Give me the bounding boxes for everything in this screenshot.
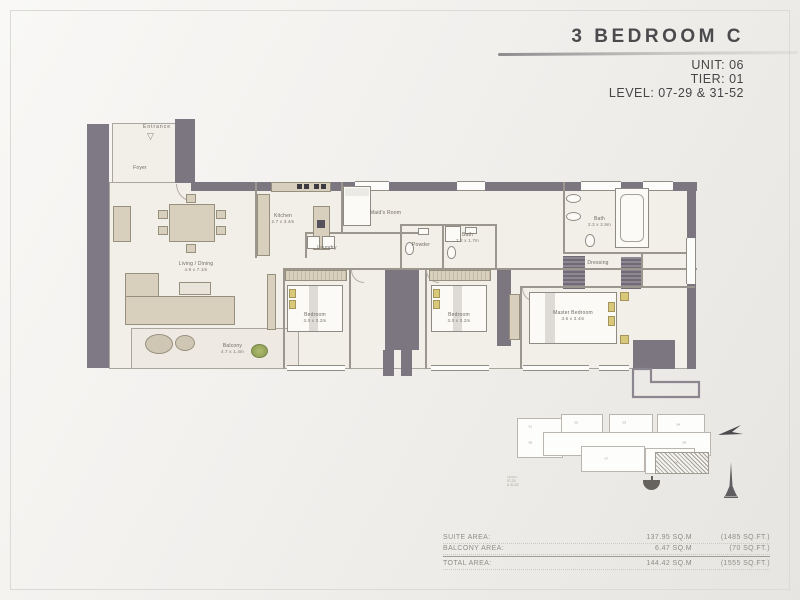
toilet xyxy=(585,234,595,247)
table-row: SUITE AREA: 137.95 SQ.M(1485 SQ.FT.) xyxy=(443,533,770,544)
nightstand xyxy=(620,292,629,301)
area-summary-table: SUITE AREA: 137.95 SQ.M(1485 SQ.FT.) BAL… xyxy=(443,533,770,570)
key-plan-unit-number: 03 xyxy=(623,422,626,425)
toilet xyxy=(447,246,456,259)
key-plan-unit-number: 07 xyxy=(605,458,608,461)
dining-chair xyxy=(158,210,168,219)
room-label-master-bath: Bath2.3 x 2.9m xyxy=(577,216,622,228)
floor-plan: Entrance ▽ Foyer Living / Dining4.9 x 7.… xyxy=(85,118,709,408)
coffee-table xyxy=(179,282,211,295)
partition xyxy=(641,252,643,286)
room-label-dressing: Dressing xyxy=(573,260,623,266)
room-label-living-dining: Living / Dining4.9 x 7.1m xyxy=(161,261,231,273)
stove-burner xyxy=(314,184,319,189)
room-label-laundry: Laundry xyxy=(307,245,347,251)
key-plan-unit-number: 04 xyxy=(677,424,680,427)
bed-pillow xyxy=(433,289,440,298)
entrance-label: Entrance xyxy=(127,124,187,130)
unit-number: UNIT: 06 xyxy=(609,58,744,72)
tv-unit xyxy=(267,274,276,330)
wall-segment xyxy=(385,268,419,350)
pouf xyxy=(175,335,195,351)
key-plan-note: LEVEL 07-29 & 31-52 xyxy=(507,476,519,488)
bed-pillow xyxy=(289,289,296,298)
room-label-bath: Bath2.2 x 1.7m xyxy=(445,232,490,244)
partition xyxy=(283,268,285,369)
unit-info: UNIT: 06 TIER: 01 LEVEL: 07-29 & 31-52 xyxy=(609,58,744,100)
area-label: BALCONY AREA: xyxy=(443,545,504,552)
sink xyxy=(566,194,581,203)
key-plan-unit-number: 01 xyxy=(529,426,532,429)
key-plan: 01 02 03 04 08 05 07 06 LEVEL 07-29 & 31… xyxy=(505,412,757,516)
area-sqm: 6.47 SQ.M xyxy=(604,545,692,552)
sideboard xyxy=(113,206,131,242)
opera-dome-icon xyxy=(643,476,661,490)
area-sqft: (1555 SQ.FT.) xyxy=(692,560,770,567)
key-plan-highlighted-unit xyxy=(655,452,709,474)
table-row-total: TOTAL AREA: 144.42 SQ.M(1555 SQ.FT.) xyxy=(443,557,770,570)
kitchen-counter xyxy=(257,194,270,256)
sofa xyxy=(125,296,235,325)
wardrobe xyxy=(429,270,491,281)
nightstand xyxy=(620,335,629,344)
bathtub-inner xyxy=(620,194,644,242)
tier-number: TIER: 01 xyxy=(609,72,744,86)
dome-body xyxy=(643,480,660,490)
area-sqft: (1485 SQ.FT.) xyxy=(692,534,770,541)
window xyxy=(457,181,485,191)
partition xyxy=(495,224,497,269)
key-plan-unit-number: 08 xyxy=(529,442,532,445)
partition xyxy=(563,182,565,254)
wall-segment xyxy=(383,350,394,376)
dresser xyxy=(509,294,520,340)
wall-segment xyxy=(401,350,412,376)
room-label-kitchen: Kitchen2.7 x 3.4m xyxy=(257,213,309,225)
bed-blanket xyxy=(309,286,318,331)
kitchen-sink xyxy=(317,220,325,228)
key-plan-unit-number: 05 xyxy=(683,442,686,445)
page-title: 3 BEDROOM C xyxy=(571,26,744,48)
bed-blanket xyxy=(453,286,462,331)
window xyxy=(431,365,489,371)
area-label: SUITE AREA: xyxy=(443,534,491,541)
room-label-foyer: Foyer xyxy=(115,165,165,171)
dining-table xyxy=(169,204,215,242)
window xyxy=(287,365,345,371)
dressing-wardrobe xyxy=(621,257,641,289)
bed-pillow xyxy=(345,188,369,196)
partition xyxy=(520,286,522,369)
area-sqm: 137.95 SQ.M xyxy=(604,534,692,541)
room-label-maids-room: Maid's Room xyxy=(363,210,408,216)
dining-chair xyxy=(186,194,196,203)
room-label-bedroom-2: Bedroom3.0 x 3.2m xyxy=(431,312,487,324)
room-label-bedroom-1: Bedroom3.0 x 3.2m xyxy=(287,312,343,324)
window xyxy=(686,238,696,284)
entrance-arrow-icon: ▽ xyxy=(147,132,154,141)
bed-pillow xyxy=(608,316,615,326)
wardrobe xyxy=(285,270,347,281)
dining-chair xyxy=(158,226,168,235)
room-label-master-bedroom: Master Bedroom3.6 x 3.4m xyxy=(537,310,609,322)
area-sqft: (70 SQ.FT.) xyxy=(692,545,770,552)
partition xyxy=(349,268,351,369)
dining-chair xyxy=(216,226,226,235)
north-arrow-icon xyxy=(717,422,745,438)
foyer-room xyxy=(112,123,176,183)
level-range: LEVEL: 07-29 & 31-52 xyxy=(609,86,744,100)
partition xyxy=(520,286,695,288)
wall-segment xyxy=(87,124,109,368)
table-row: BALCONY AREA: 6.47 SQ.M(70 SQ.FT.) xyxy=(443,544,770,555)
wall-segment xyxy=(633,340,675,369)
bed-pillow xyxy=(433,300,440,309)
partition xyxy=(563,252,695,254)
dining-chair xyxy=(186,244,196,253)
bed-pillow xyxy=(289,300,296,309)
pouf xyxy=(145,334,173,354)
key-plan-unit xyxy=(581,446,645,472)
key-plan-unit-number: 02 xyxy=(575,422,578,425)
dining-chair xyxy=(216,210,226,219)
partition xyxy=(442,224,444,269)
key-plan-unit-number: 06 xyxy=(675,462,678,465)
room-label-balcony: Balcony4.7 x 1.4m xyxy=(205,343,260,355)
stove-burner xyxy=(304,184,309,189)
structure-outline xyxy=(631,367,701,399)
partition xyxy=(425,268,427,369)
area-label: TOTAL AREA: xyxy=(443,560,492,567)
bed-pillow xyxy=(608,302,615,312)
window xyxy=(523,365,589,371)
sink xyxy=(418,228,429,235)
window xyxy=(599,365,629,371)
stove-burner xyxy=(321,184,326,189)
burj-khalifa-icon xyxy=(724,462,738,500)
room-label-powder: Powder xyxy=(401,242,441,248)
area-sqm: 144.42 SQ.M xyxy=(604,560,692,567)
stove-burner xyxy=(297,184,302,189)
floorplan-sheet: 3 BEDROOM C UNIT: 06 TIER: 01 LEVEL: 07-… xyxy=(0,0,800,600)
